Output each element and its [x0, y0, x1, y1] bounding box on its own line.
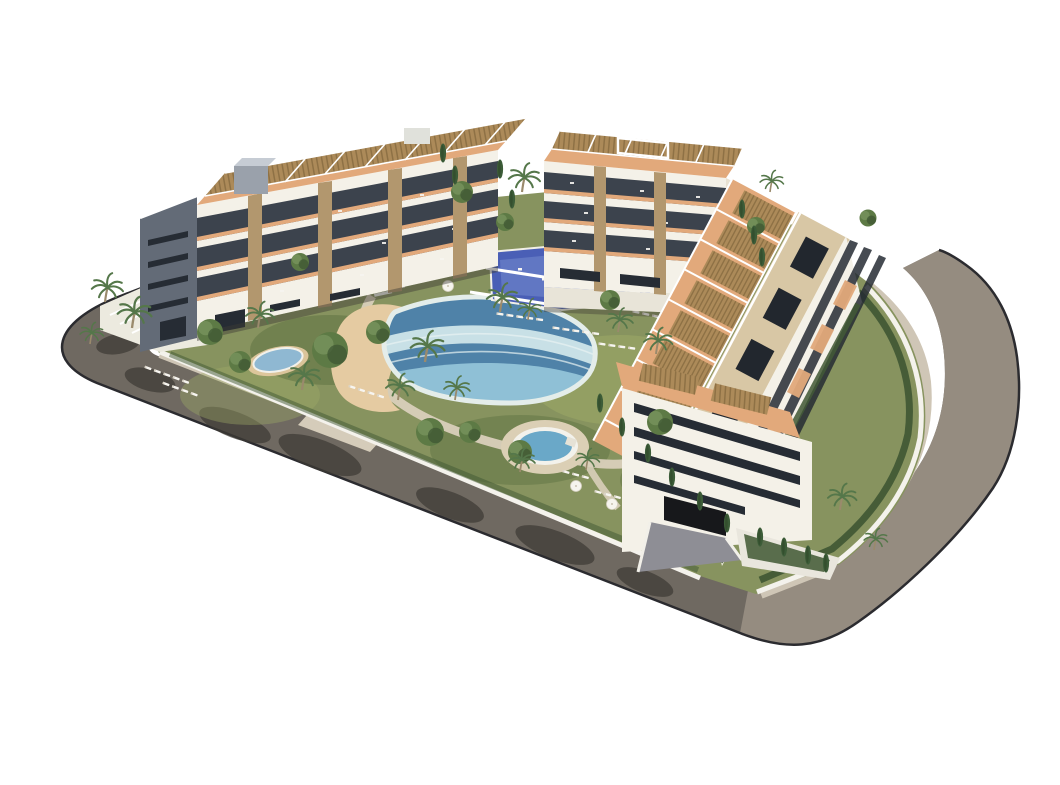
canopy-tree: [496, 213, 514, 231]
cypress-tree: [645, 444, 651, 463]
n-stone-pillar: [654, 172, 666, 295]
canopy-tree: [366, 320, 390, 344]
nw-roof-box: [404, 128, 430, 144]
cypress-tree: [724, 514, 730, 533]
cypress-tree: [619, 418, 625, 437]
canopy-tree: [291, 253, 309, 271]
canopy-tree: [459, 421, 481, 443]
cypress-tree: [452, 166, 458, 185]
nw-stone-pillar: [388, 168, 402, 293]
cypress-tree: [781, 538, 787, 557]
canopy-tree: [197, 319, 223, 345]
cypress-tree: [805, 546, 811, 565]
cypress-tree: [669, 468, 675, 487]
nw-stone-pillar: [248, 193, 262, 321]
palm-tree: [760, 170, 783, 192]
palm-tree: [509, 163, 540, 192]
cypress-tree: [751, 226, 757, 245]
canopy-tree: [451, 181, 473, 203]
canopy-tree: [416, 418, 444, 446]
render-canvas: [0, 0, 1060, 785]
cypress-tree: [697, 492, 703, 511]
nw-stone-pillar: [318, 181, 332, 308]
canopy-tree: [600, 290, 620, 310]
cypress-tree: [757, 528, 763, 547]
canopy-tree: [647, 409, 673, 435]
canopy-tree: [229, 351, 251, 373]
architectural-render: [0, 0, 1060, 785]
cypress-tree: [440, 144, 446, 163]
cypress-tree: [739, 200, 745, 219]
canopy-tree: [860, 210, 877, 227]
cypress-tree: [823, 554, 829, 573]
cypress-tree: [597, 394, 603, 413]
cypress-tree: [509, 190, 515, 209]
canopy-tree: [312, 332, 348, 368]
cypress-tree: [497, 160, 503, 179]
parasol: [571, 481, 582, 492]
parasol: [607, 499, 618, 510]
cypress-tree: [759, 248, 765, 267]
